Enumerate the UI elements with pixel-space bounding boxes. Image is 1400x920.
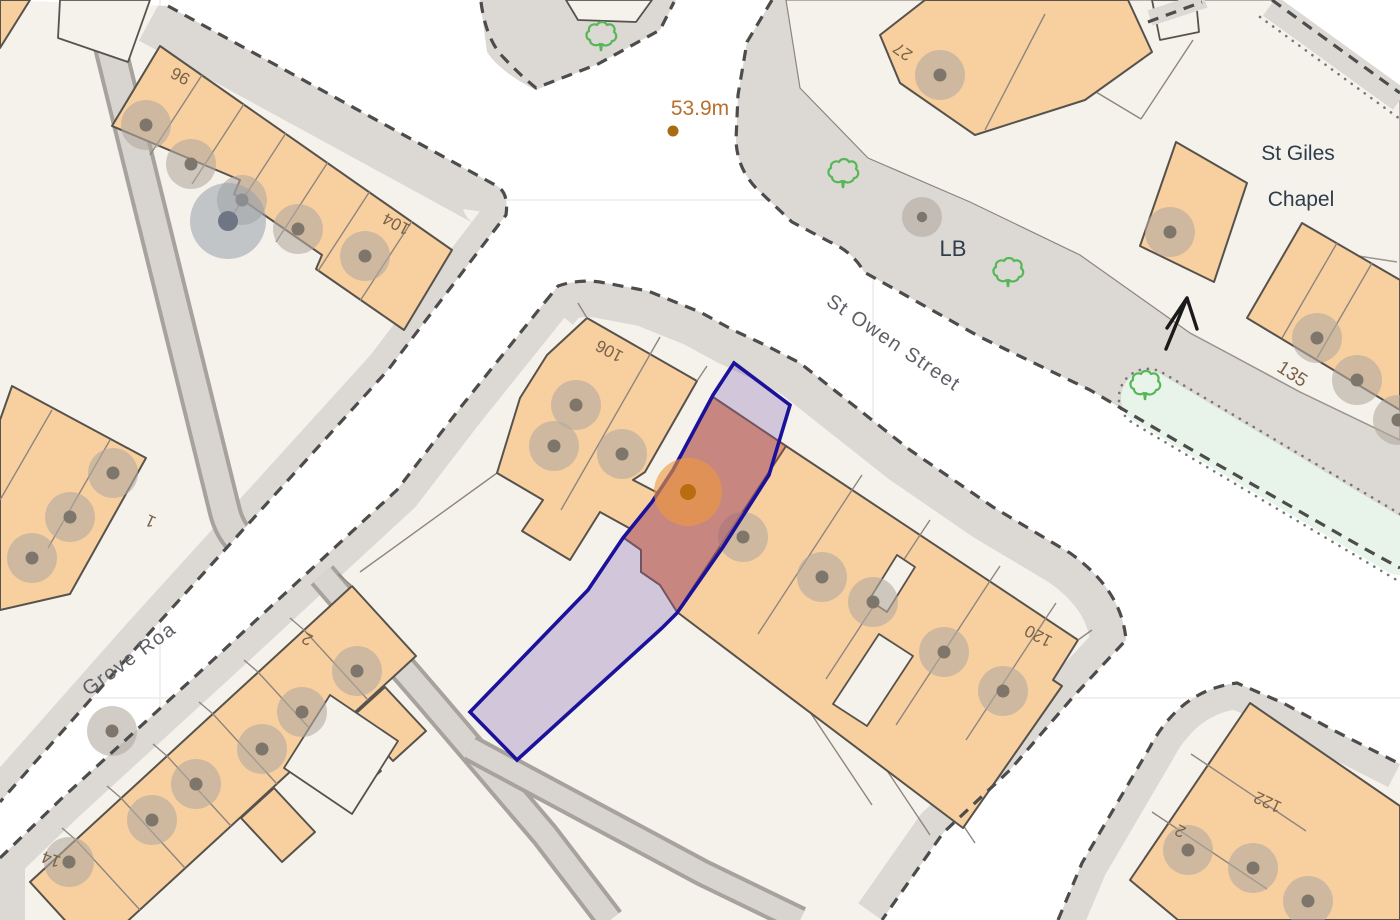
building-dot-icon <box>127 795 177 845</box>
building-dot-icon <box>166 139 216 189</box>
map-viewport[interactable]: 96 104 1 <box>0 0 1400 920</box>
building-dot-icon <box>1145 207 1195 257</box>
building-dot-icon <box>1332 355 1382 405</box>
building-dot-icon <box>7 533 57 583</box>
building-dot-icon <box>171 759 221 809</box>
building-dot-icon <box>87 706 137 756</box>
building-dot-icon <box>1163 825 1213 875</box>
letter-box-dot-icon <box>902 197 942 237</box>
map-canvas[interactable]: 96 104 1 <box>0 0 1400 920</box>
building-dot-icon <box>529 421 579 471</box>
building-dot-icon <box>1228 843 1278 893</box>
large-building-dot-icon <box>190 183 266 259</box>
building-dot-icon <box>848 577 898 627</box>
letter-box-label: LB <box>940 236 967 261</box>
building-dot-icon <box>88 448 138 498</box>
chapel-label: Chapel <box>1268 188 1335 211</box>
building-dot-icon <box>1292 313 1342 363</box>
st-giles-label: St Giles <box>1261 142 1335 165</box>
spot-height-label: 53.9m <box>671 97 729 120</box>
property-marker[interactable] <box>654 458 722 526</box>
spot-height-dot <box>668 126 679 137</box>
building-dot-icon <box>978 666 1028 716</box>
building-dot-icon <box>237 724 287 774</box>
building-dot-icon <box>277 687 327 737</box>
building-dot-icon <box>273 204 323 254</box>
building-dot-icon <box>919 627 969 677</box>
building-dot-icon <box>121 100 171 150</box>
building-dot-icon <box>332 646 382 696</box>
building-dot-icon <box>597 429 647 479</box>
building-dot-icon <box>340 231 390 281</box>
building-dot-icon <box>797 552 847 602</box>
building-dot-icon <box>915 50 965 100</box>
building-dot-icon <box>45 492 95 542</box>
